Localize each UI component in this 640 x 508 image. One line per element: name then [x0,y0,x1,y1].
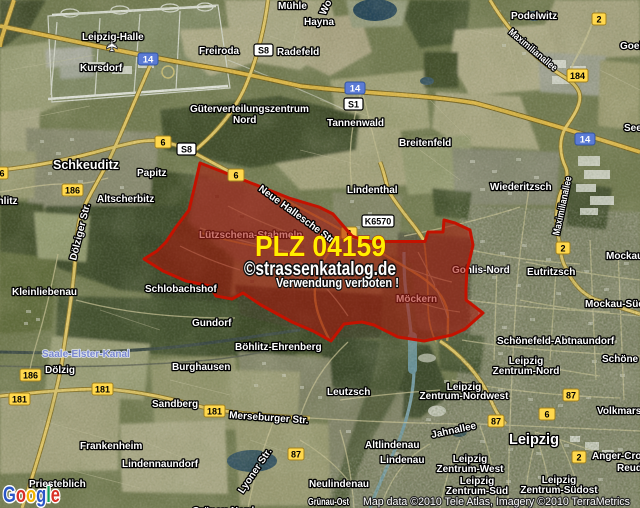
svg-text:186: 186 [65,186,80,196]
svg-text:Zentrum-West: Zentrum-West [436,464,504,475]
svg-text:Altlindenau: Altlindenau [365,440,419,451]
svg-text:6: 6 [233,171,238,181]
svg-text:Altscherbitz: Altscherbitz [97,194,154,205]
svg-text:Lindenau: Lindenau [380,455,424,466]
svg-text:14: 14 [580,135,591,146]
svg-text:Podelwitz: Podelwitz [511,11,557,22]
svg-text:S1: S1 [348,100,359,110]
svg-text:Frankenheim: Frankenheim [80,441,142,452]
svg-text:Grünau-Ost: Grünau-Ost [308,497,349,508]
svg-text:Goel: Goel [620,41,640,52]
svg-text:S8: S8 [258,46,269,56]
svg-text:Freiroda: Freiroda [199,46,239,57]
svg-text:Schkeuditz: Schkeuditz [53,158,119,172]
svg-text:2: 2 [576,453,581,463]
svg-text:Seeh: Seeh [624,123,640,134]
svg-text:Zentrum-Nord: Zentrum-Nord [493,366,560,377]
svg-text:Lindennaundorf: Lindennaundorf [122,459,199,470]
svg-text:Mockau-Süd: Mockau-Süd [585,299,640,310]
svg-text:Papitz: Papitz [137,168,166,179]
svg-text:Kursdorf: Kursdorf [80,63,123,74]
svg-text:6: 6 [544,410,549,420]
svg-text:14: 14 [143,55,154,66]
svg-text:Schönefeld-Abtnaundorf: Schönefeld-Abtnaundorf [497,336,615,347]
svg-text:Gundorf: Gundorf [192,318,232,329]
svg-text:Mockau-S: Mockau-S [606,251,640,262]
svg-text:Volkmarsd: Volkmarsd [597,406,640,417]
svg-text:Anger-Crott: Anger-Crott [592,451,640,462]
svg-text:Tannenwald: Tannenwald [327,118,384,129]
svg-text:Hayna: Hayna [304,17,334,28]
svg-text:✈: ✈ [104,40,120,52]
svg-text:Leipzig: Leipzig [509,432,559,448]
svg-text:Zentrum-Südost: Zentrum-Südost [520,485,598,496]
svg-text:Reudn: Reudn [617,463,640,474]
svg-text:Kleinliebenau: Kleinliebenau [12,287,77,298]
svg-text:Zentrum-Nordwest: Zentrum-Nordwest [420,391,510,402]
svg-text:186: 186 [23,371,38,381]
svg-text:6: 6 [160,138,165,148]
svg-text:2: 2 [596,15,601,25]
svg-text:Leutzsch: Leutzsch [327,387,370,398]
svg-text:181: 181 [12,395,27,405]
svg-text:Güterverteilungszentrum: Güterverteilungszentrum [190,104,309,115]
svg-text:184: 184 [570,71,585,81]
svg-text:Lindenthal: Lindenthal [347,185,398,196]
svg-text:Nord: Nord [233,115,256,126]
svg-text:87: 87 [491,417,501,427]
svg-text:87: 87 [566,391,576,401]
svg-text:Burghausen: Burghausen [172,362,230,373]
svg-text:181: 181 [207,407,222,417]
svg-text:181: 181 [95,385,110,395]
svg-text:Böhlitz-Ehrenberg: Böhlitz-Ehrenberg [235,342,322,353]
svg-text:Map data ©2010 Tele Atlas, Ima: Map data ©2010 Tele Atlas, Imagery ©2010… [363,496,630,508]
svg-text:87: 87 [291,450,301,460]
svg-text:Wiederitzsch: Wiederitzsch [490,182,552,193]
svg-text:Google: Google [3,482,60,507]
svg-text:Sandberg: Sandberg [152,399,198,410]
svg-text:Breitenfeld: Breitenfeld [399,138,451,149]
svg-text:Schöne: Schöne [602,354,639,365]
svg-text:2: 2 [560,244,565,254]
svg-text:Eutritzsch: Eutritzsch [527,267,575,278]
svg-text:14: 14 [350,84,361,95]
svg-text:6: 6 [0,169,5,179]
svg-text:Dölzig: Dölzig [45,365,75,376]
svg-text:chlitz: chlitz [0,196,18,207]
svg-text:Mühle: Mühle [278,1,307,12]
svg-text:Schlobachshof: Schlobachshof [145,284,217,295]
svg-text:Verwendung verboten !: Verwendung verboten ! [276,275,399,290]
svg-text:K6570: K6570 [365,217,392,227]
svg-text:Radefeld: Radefeld [277,47,319,58]
svg-text:Saale-Elster-Kanal: Saale-Elster-Kanal [42,349,130,360]
svg-text:Neulindenau: Neulindenau [309,479,369,490]
svg-text:S8: S8 [181,145,192,155]
